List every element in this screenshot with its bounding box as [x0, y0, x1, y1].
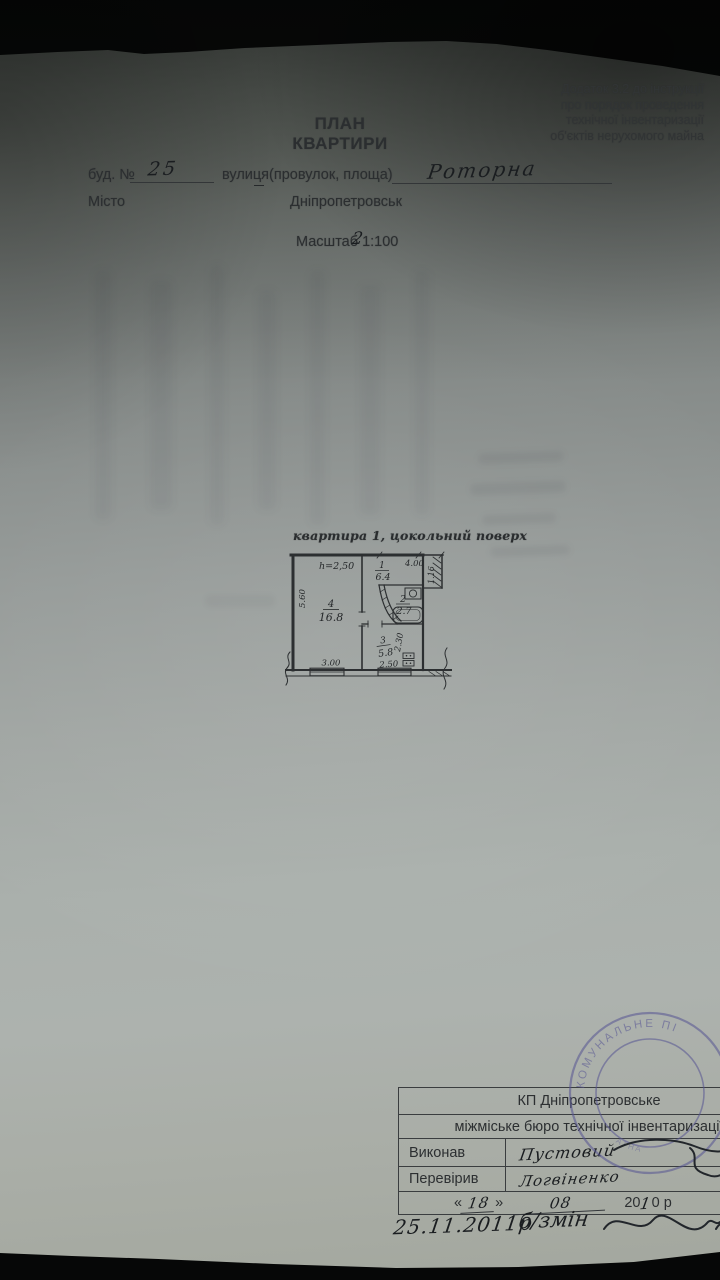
checked-value-cell: Логвіненко [506, 1167, 720, 1191]
appendix-line: про порядок проведення [550, 98, 704, 114]
checked-by-handwritten: Логвіненко [518, 1167, 621, 1190]
table-row-org2: міжміське бюро технічної інвентаризації [399, 1115, 720, 1139]
scale-printed-value: 1:100 [362, 234, 398, 250]
checked-label: Перевірив [399, 1167, 506, 1191]
break-line-right [443, 648, 447, 689]
executed-by-handwritten: Пустовий [518, 1141, 617, 1165]
stove-icon [403, 661, 414, 667]
floor-plan-drawing: h=2,50 1 6.4 4.00 1.16 5.60 4 16.8 2 2.7… [283, 548, 465, 693]
scale-label: Масштаб [296, 234, 358, 250]
building-number-handwritten: 25 [146, 157, 179, 180]
table-row-checked: Перевірив Логвіненко [399, 1167, 720, 1192]
stove-icon [403, 653, 414, 659]
room3-label-group: 3 5.8 [375, 635, 394, 660]
table-row-org1: КП Дніпропетровське [399, 1088, 720, 1115]
room1-number: 1 [379, 561, 385, 571]
stove-burner-dot [410, 662, 412, 664]
title-line-2: КВАРТИРИ [230, 134, 450, 154]
appendix-note: Додаток 3.2 до інструкції про порядок пр… [550, 82, 704, 144]
date-day-handwritten: 18 [460, 1193, 496, 1214]
building-label: буд. № [88, 167, 135, 183]
quote-close: » [495, 1195, 503, 1211]
appendix-line: об'єктів нерухомого майна [550, 129, 704, 145]
appendix-line: технічної інвентаризації [550, 113, 704, 129]
city-label: Місто [88, 194, 125, 210]
dim-top-right: 4.00 [404, 559, 425, 569]
stove-burner-dot [410, 655, 412, 657]
street-label: вулиця(провулок, площа) [222, 167, 393, 183]
room2-area: 2.7 [395, 606, 412, 617]
room2-number: 2 [399, 595, 406, 605]
street-name-handwritten: Роторна [426, 156, 538, 184]
document-title: ПЛАН КВАРТИРИ [230, 114, 450, 154]
dim-right-notch: 1.16 [427, 566, 436, 584]
toilet-bowl-icon [409, 590, 416, 597]
ceiling-height-label: h=2,50 [319, 561, 354, 572]
stove-burner-dot [406, 662, 408, 664]
photographed-document-page: Додаток 3.2 до інструкції про порядок пр… [0, 0, 720, 1280]
room4-area: 16.8 [319, 611, 344, 624]
dim-bottom-left: 3.00 [322, 659, 342, 669]
break-line-left [285, 652, 290, 685]
title-line-1: ПЛАН [230, 114, 450, 134]
footnote-text-handwritten: б/змін [517, 1207, 590, 1233]
executed-label: Виконав [399, 1139, 506, 1166]
appendix-line: Додаток 3.2 до інструкції [550, 82, 704, 98]
room3-number: 3 [379, 636, 386, 647]
wall-hatching-bottom [429, 672, 449, 676]
table-row-executed: Виконав Пустовий [399, 1139, 720, 1167]
city-name: Дніпропетровськ [290, 194, 402, 210]
room4-number: 4 [327, 599, 334, 610]
org-name-line2: міжміське бюро технічної інвентаризації [454, 1119, 720, 1135]
room3-area: 5.8 [378, 647, 394, 660]
stove-burner-dot [406, 655, 408, 657]
room1-area: 6.4 [375, 572, 390, 583]
scale-line: Масштаб 1:100 [296, 234, 398, 250]
footnote-date-handwritten: 25.11.2011р [392, 1211, 534, 1240]
dim-bottom-right: 2.50 [378, 659, 399, 670]
dim-left-height: 5.60 [298, 588, 308, 608]
inventory-bureau-table: КП Дніпропетровське міжміське бюро техні… [398, 1087, 720, 1215]
dim-right-mid: 2.30 [393, 632, 406, 654]
plan-caption: квартира 1, цокольний поверх [293, 528, 527, 543]
org-name-line1: КП Дніпропетровське [517, 1093, 660, 1109]
year-rest: 0 р [652, 1195, 672, 1211]
pen-mark-under-letter [254, 167, 264, 186]
executed-value-cell: Пустовий [506, 1139, 720, 1166]
